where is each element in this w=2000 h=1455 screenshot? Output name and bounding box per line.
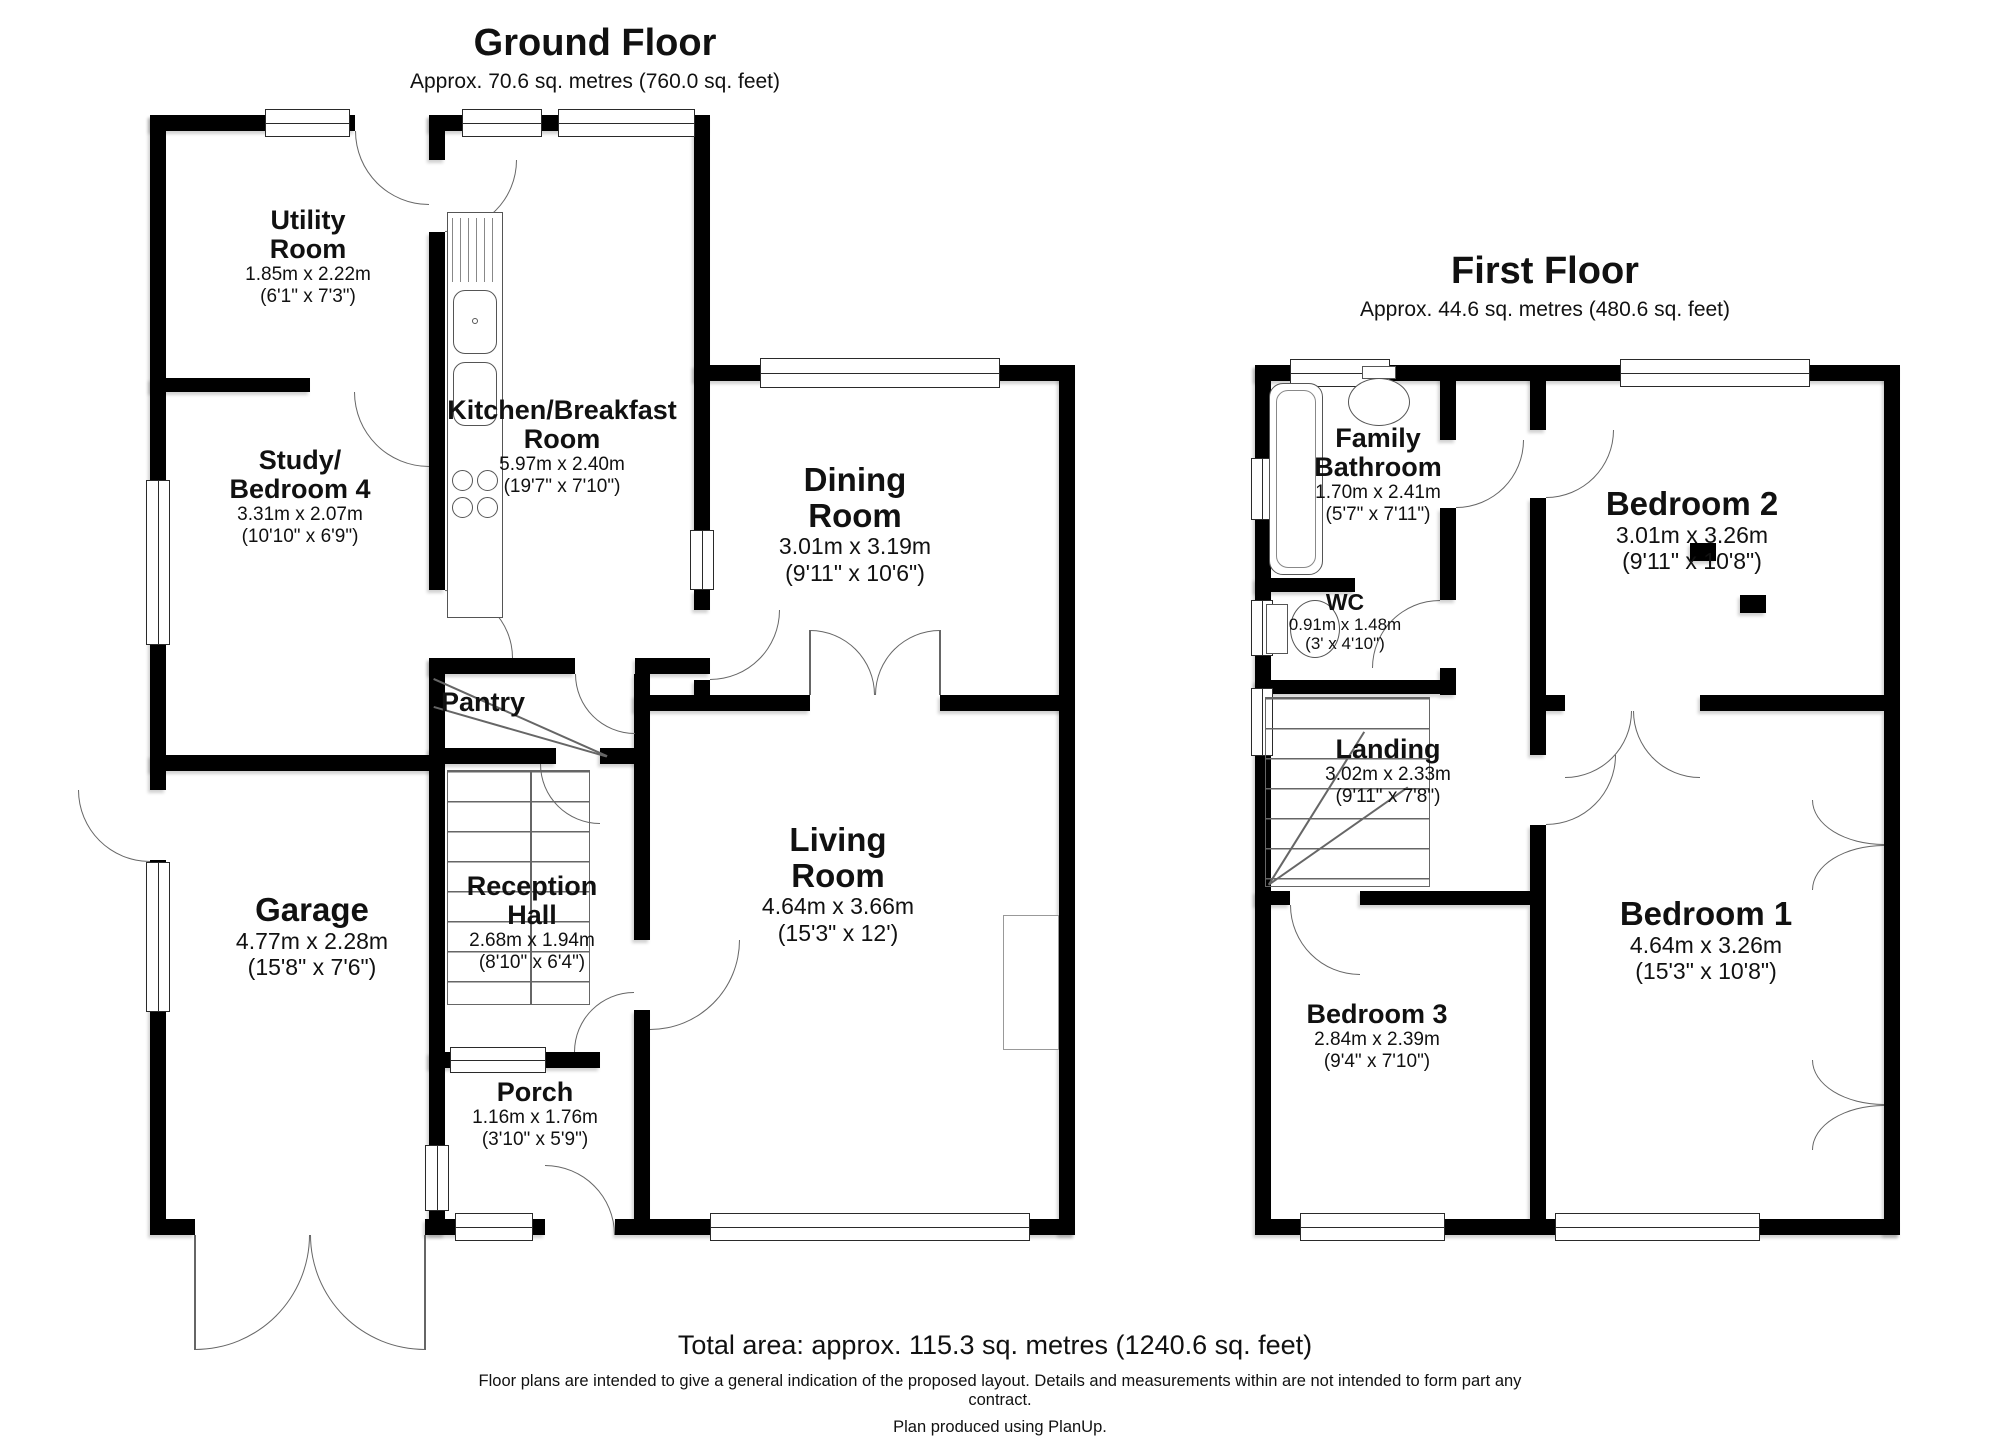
room-name: Family Bathroom <box>1314 424 1442 482</box>
room-name: Kitchen/Breakfast Room <box>447 396 677 454</box>
door-arc <box>1546 430 1614 498</box>
room-dim-metric: 2.84m x 2.39m <box>1306 1029 1447 1051</box>
wall <box>1530 498 1546 695</box>
room-dim-metric: 0.91m x 1.48m <box>1289 615 1401 635</box>
door-leaf <box>939 630 941 695</box>
wall <box>615 1219 634 1235</box>
room-dim-imperial: (6'1" x 7'3") <box>245 286 371 308</box>
wall <box>1440 668 1456 695</box>
room-dim-metric: 1.70m x 2.41m <box>1314 482 1442 504</box>
window <box>455 1213 533 1241</box>
room-dim-metric: 4.77m x 2.28m <box>236 928 388 954</box>
fireplace <box>1003 915 1059 1050</box>
chimney-breast <box>1740 595 1766 613</box>
room-label-bedroom3: Bedroom 3 2.84m x 2.39m (9'4" x 7'10") <box>1306 1000 1447 1073</box>
wall <box>1255 680 1440 694</box>
wall <box>150 1219 195 1235</box>
room-label-dining: Dining Room 3.01m x 3.19m (9'11" x 10'6"… <box>779 462 931 586</box>
room-dim-imperial: (9'11" x 10'6") <box>779 560 931 586</box>
sink-basin <box>1348 378 1410 426</box>
room-dim-imperial: (9'4" x 7'10") <box>1306 1051 1447 1073</box>
toilet-tank <box>1266 604 1288 654</box>
room-dim-metric: 5.97m x 2.40m <box>447 454 677 476</box>
room-name: Dining Room <box>779 462 931 533</box>
wall <box>1440 365 1456 440</box>
room-dim-metric: 2.68m x 1.94m <box>467 930 598 952</box>
hob-burner-icon <box>452 497 473 518</box>
wardrobe-door-arc <box>1812 845 1884 890</box>
bathtub-inner <box>1276 390 1316 568</box>
room-label-garage: Garage 4.77m x 2.28m (15'8" x 7'6") <box>236 892 388 981</box>
room-dim-imperial: (15'8" x 7'6") <box>236 954 388 980</box>
door-arc <box>650 940 740 1030</box>
ground-floor-subtitle: Approx. 70.6 sq. metres (760.0 sq. feet) <box>410 70 780 94</box>
total-area-text: Total area: approx. 115.3 sq. metres (12… <box>678 1330 1312 1361</box>
room-dim-imperial: (15'3" x 10'8") <box>1620 958 1792 984</box>
sink-drain-icon <box>472 318 478 324</box>
wall <box>635 658 710 674</box>
door-leaf <box>424 1235 426 1350</box>
wall <box>1530 695 1565 711</box>
window <box>265 109 350 137</box>
wall <box>429 232 445 590</box>
room-name: Living Room <box>762 822 914 893</box>
room-label-living: Living Room 4.64m x 3.66m (15'3" x 12') <box>762 822 914 946</box>
room-label-pantry: Pantry <box>441 688 525 717</box>
door-arc <box>78 790 150 862</box>
floorplan-canvas: Ground Floor Approx. 70.6 sq. metres (76… <box>0 0 2000 1455</box>
room-label-landing: Landing 3.02m x 2.33m (9'11" x 7'8") <box>1325 735 1451 808</box>
wardrobe-door-arc <box>1812 1105 1884 1150</box>
first-floor-title: First Floor <box>1451 250 1639 293</box>
room-dim-metric: 4.64m x 3.26m <box>1620 932 1792 958</box>
door-arc <box>1546 755 1616 825</box>
room-label-utility: Utility Room 1.85m x 2.22m (6'1" x 7'3") <box>245 206 371 308</box>
room-name: Study/ Bedroom 4 <box>229 446 370 504</box>
window <box>760 358 1000 388</box>
room-dim-imperial: (3'10" x 5'9") <box>472 1129 598 1151</box>
window <box>1620 359 1810 387</box>
room-name: Utility Room <box>245 206 371 264</box>
room-label-bathroom: Family Bathroom 1.70m x 2.41m (5'7" x 7'… <box>1314 424 1442 526</box>
room-dim-metric: 3.01m x 3.19m <box>779 533 931 559</box>
disclaimer-text: Floor plans are intended to give a gener… <box>150 1372 1850 1410</box>
wall <box>429 748 556 764</box>
wall <box>634 1010 650 1219</box>
wardrobe-door-arc <box>1812 800 1884 845</box>
door-arc <box>875 630 940 695</box>
ground-floor-title: Ground Floor <box>474 22 717 65</box>
room-label-bedroom2: Bedroom 2 3.01m x 3.26m (9'11" x 10'8") <box>1606 486 1778 575</box>
room-dim-imperial: (19'7" x 7'10") <box>447 476 677 498</box>
room-label-wc: WC 0.91m x 1.48m (3' x 4'10") <box>1289 590 1401 654</box>
window <box>450 1047 546 1073</box>
room-label-bedroom1: Bedroom 1 4.64m x 3.26m (15'3" x 10'8") <box>1620 896 1792 985</box>
wall <box>150 378 310 392</box>
room-name: Garage <box>236 892 388 928</box>
wall <box>1700 695 1884 711</box>
wall <box>429 658 575 674</box>
wall <box>694 590 710 610</box>
window <box>690 530 714 590</box>
room-dim-metric: 3.01m x 3.26m <box>1606 522 1778 548</box>
hob-burner-icon <box>477 497 498 518</box>
door-arc <box>710 610 780 680</box>
door-arc <box>1633 711 1700 778</box>
door-arc <box>1456 440 1524 508</box>
door-arc <box>575 674 635 734</box>
wardrobe-door-arc <box>1812 1060 1884 1105</box>
room-dim-imperial: (15'3" x 12') <box>762 920 914 946</box>
room-dim-imperial: (9'11" x 10'8") <box>1606 548 1778 574</box>
wall <box>429 115 445 160</box>
wall <box>1059 365 1075 1235</box>
room-dim-metric: 1.85m x 2.22m <box>245 264 371 286</box>
window <box>146 862 170 1012</box>
room-dim-imperial: (8'10" x 6'4") <box>467 952 598 974</box>
room-label-porch: Porch 1.16m x 1.76m (3'10" x 5'9") <box>472 1078 598 1151</box>
wall <box>1360 891 1530 905</box>
wall <box>634 674 650 940</box>
room-name: WC <box>1289 590 1401 615</box>
room-name: Bedroom 3 <box>1306 1000 1447 1029</box>
window <box>146 480 170 645</box>
wall <box>429 658 445 1219</box>
window <box>710 1213 1030 1241</box>
garage-door-arc <box>310 1235 425 1350</box>
drainer-lines <box>452 218 498 282</box>
first-floor-subtitle: Approx. 44.6 sq. metres (480.6 sq. feet) <box>1360 298 1730 322</box>
sink-back <box>1362 366 1396 379</box>
window <box>462 109 542 137</box>
planup-credit-text: Plan produced using PlanUp. <box>893 1418 1107 1437</box>
wall <box>1530 825 1546 1219</box>
door-leaf <box>194 1235 196 1350</box>
door-leaf <box>809 630 811 695</box>
room-name: Bedroom 2 <box>1606 486 1778 522</box>
door-arc <box>545 1165 615 1235</box>
wall <box>1255 891 1290 905</box>
room-name: Pantry <box>441 688 525 717</box>
room-dim-imperial: (5'7" x 7'11") <box>1314 504 1442 526</box>
door-arc <box>1290 905 1360 975</box>
room-name: Landing <box>1325 735 1451 764</box>
wall <box>150 755 445 771</box>
window <box>558 109 695 137</box>
window <box>425 1145 449 1211</box>
room-dim-imperial: (3' x 4'10") <box>1289 634 1401 654</box>
room-dim-metric: 3.31m x 2.07m <box>229 504 370 526</box>
room-dim-imperial: (9'11" x 7'8") <box>1325 786 1451 808</box>
wall <box>634 695 810 711</box>
room-name: Reception Hall <box>467 872 598 930</box>
room-name: Bedroom 1 <box>1620 896 1792 932</box>
room-label-study: Study/ Bedroom 4 3.31m x 2.07m (10'10" x… <box>229 446 370 548</box>
wall <box>1884 365 1900 1235</box>
room-label-kitchen: Kitchen/Breakfast Room 5.97m x 2.40m (19… <box>447 396 677 498</box>
room-dim-imperial: (10'10" x 6'9") <box>229 526 370 548</box>
door-arc <box>810 630 875 695</box>
wall <box>1530 711 1546 755</box>
room-label-reception: Reception Hall 2.68m x 1.94m (8'10" x 6'… <box>467 872 598 974</box>
window <box>1300 1213 1445 1241</box>
wall <box>150 115 166 790</box>
wall <box>1440 508 1456 600</box>
window <box>1555 1213 1760 1241</box>
room-name: Porch <box>472 1078 598 1107</box>
door-arc <box>355 131 429 205</box>
room-dim-metric: 1.16m x 1.76m <box>472 1107 598 1129</box>
wall <box>694 115 710 530</box>
wall <box>940 695 1075 711</box>
garage-door-arc <box>195 1235 310 1350</box>
wall <box>1530 365 1546 430</box>
wall <box>694 680 710 695</box>
room-dim-metric: 3.02m x 2.33m <box>1325 764 1451 786</box>
room-dim-metric: 4.64m x 3.66m <box>762 893 914 919</box>
